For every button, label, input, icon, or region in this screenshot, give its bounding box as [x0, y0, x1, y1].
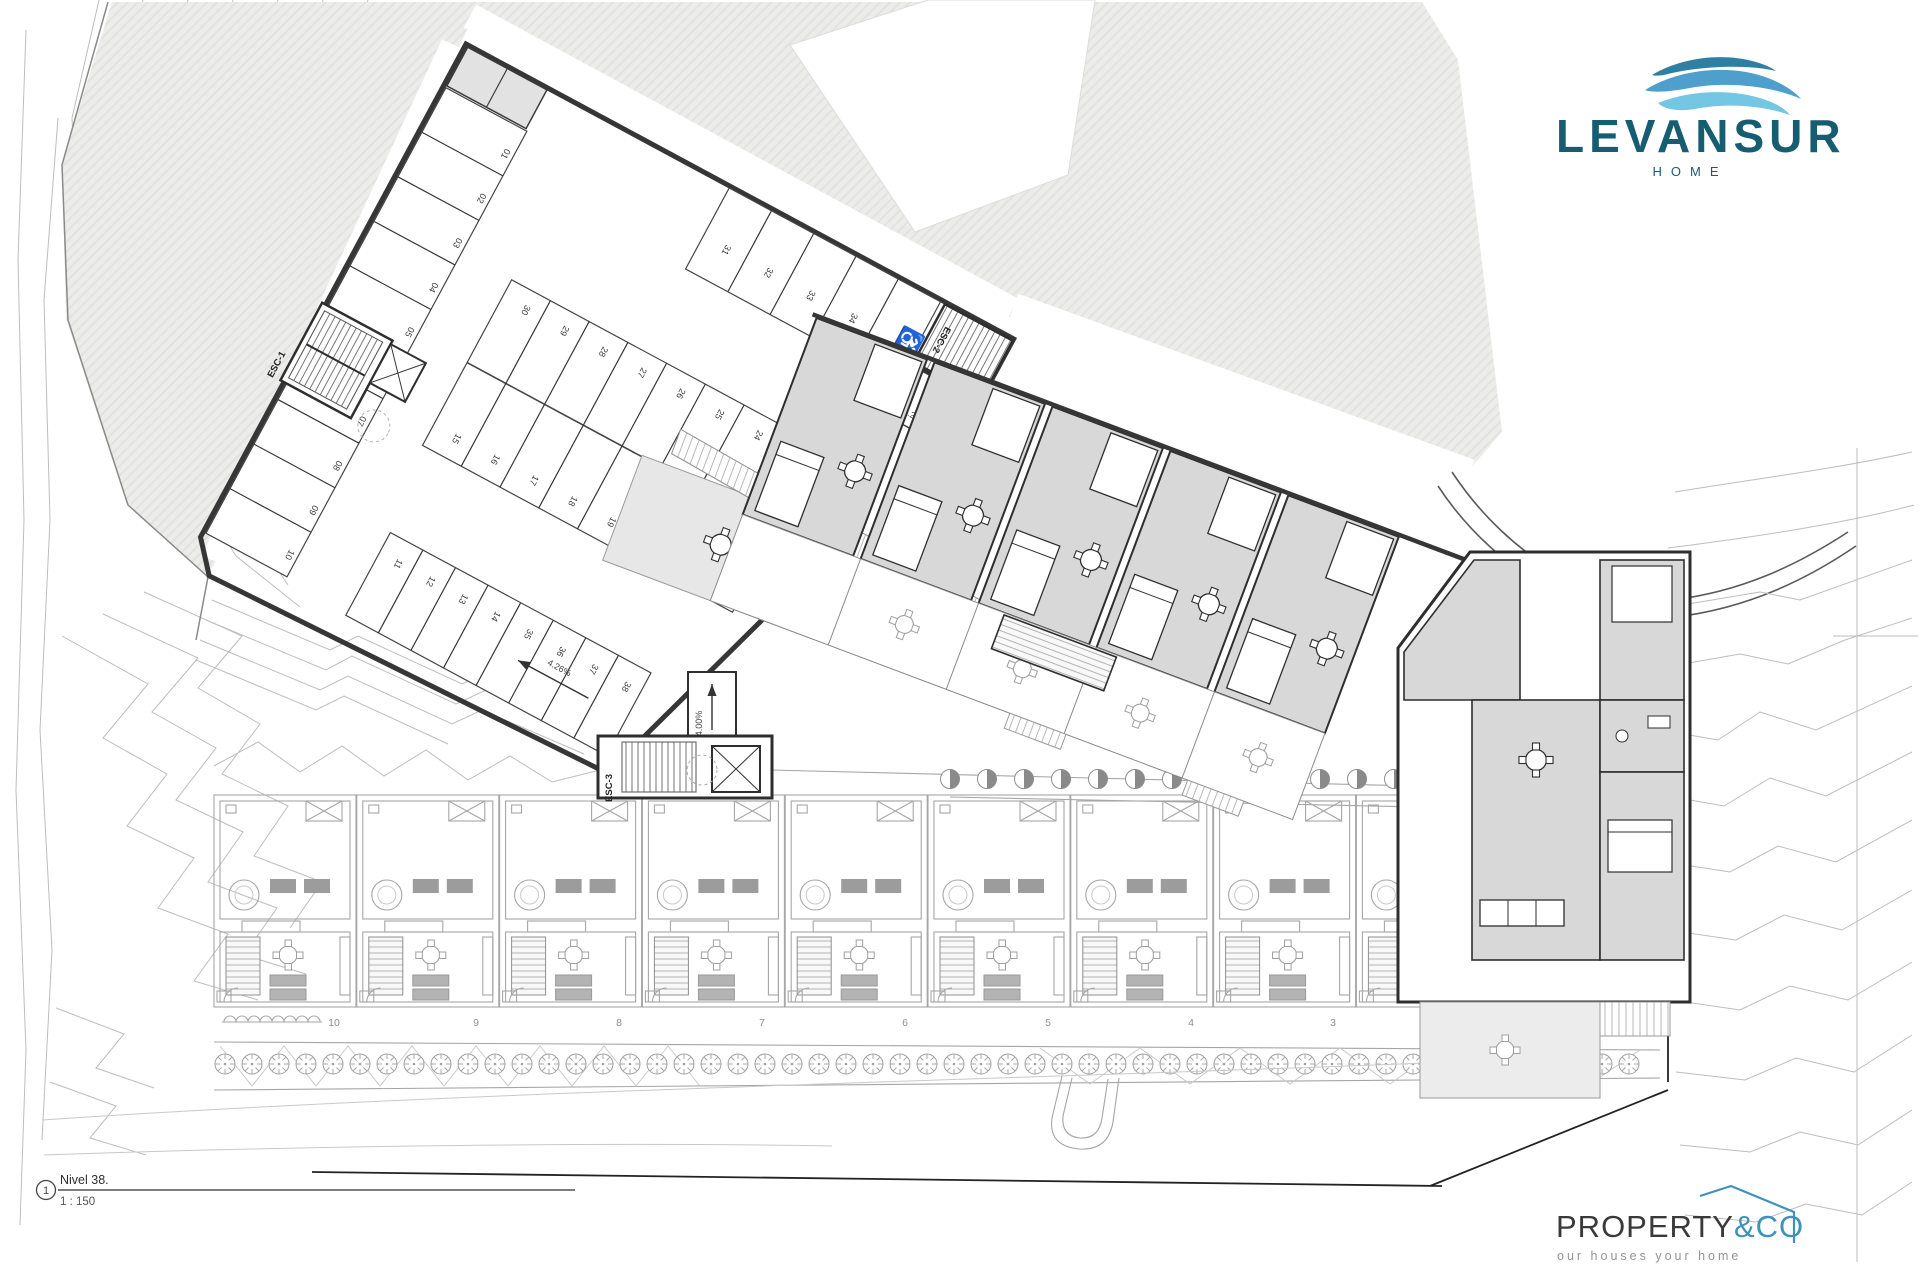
levansur-subtitle: HOME [1653, 164, 1728, 179]
scale-label: 1 : 150 [60, 1196, 95, 1208]
property-co-tagline: our houses your home [1557, 1249, 1741, 1263]
townhouse-number: 5 [1045, 1017, 1051, 1029]
detail-number: 1 [43, 1185, 49, 1197]
levansur-wordmark: LEVANSUR [1556, 110, 1846, 162]
floor-plan-page: 10 9 8 7 6 5 4 3 2 1 01 02 03 04 05 06 0… [0, 0, 1920, 1280]
svg-text:ESC-3: ESC-3 [604, 774, 615, 802]
floor-plan-canvas: 10 9 8 7 6 5 4 3 2 1 01 02 03 04 05 06 0… [0, 0, 1920, 1280]
townhouse-number: 8 [616, 1017, 622, 1029]
level-label: Nivel 38. [60, 1173, 109, 1187]
end-apartment [1398, 552, 1690, 1098]
townhouse-number: 6 [902, 1017, 908, 1029]
townhouse-number: 4 [1188, 1017, 1194, 1029]
property-co-wordmark: PROPERTY&CO [1556, 1209, 1804, 1244]
townhouse-number: 9 [473, 1017, 479, 1029]
townhouse-number: 3 [1330, 1017, 1336, 1029]
townhouse-number: 10 [328, 1017, 340, 1029]
townhouse-number: 7 [759, 1017, 765, 1029]
